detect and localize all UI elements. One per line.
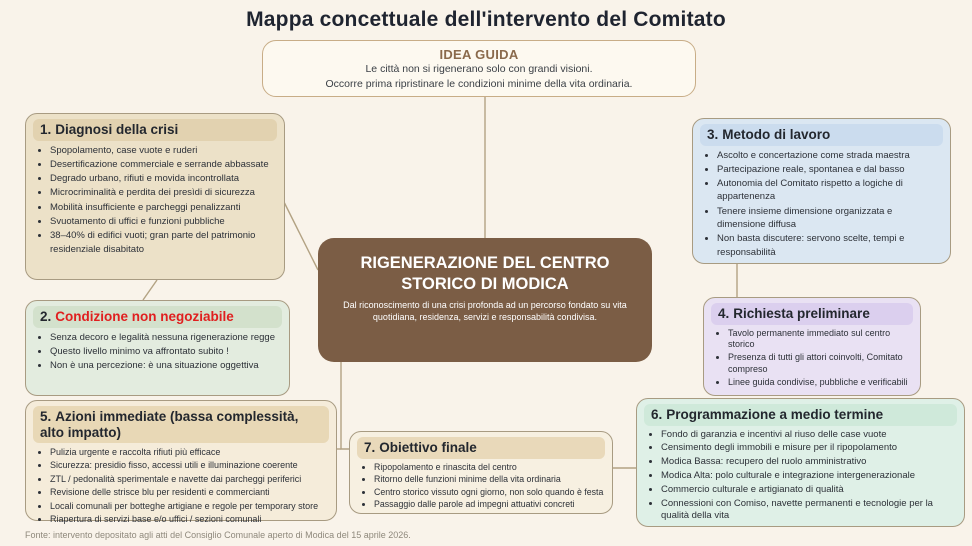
central-title: RIGENERAZIONE DEL CENTRO STORICO DI MODI… xyxy=(332,253,638,296)
node-header: 1.Diagnosi della crisi xyxy=(33,119,277,141)
bullet-item: Fondo di garanzia e incentivi al riuso d… xyxy=(661,429,957,442)
idea-guida-line2: Occorre prima ripristinare le condizioni… xyxy=(263,77,695,92)
idea-guida-banner: IDEA GUIDA Le città non si rigenerano so… xyxy=(262,40,696,97)
bullet-item: 38–40% di edifici vuoti; gran parte del … xyxy=(50,229,277,256)
node-azioni-immediate: 5.Azioni immediate (bassa complessità, a… xyxy=(25,400,337,521)
bullet-item: Locali comunali per botteghe artigiane e… xyxy=(50,500,329,512)
bullet-item: ZTL / pedonalità sperimentale e navette … xyxy=(50,473,329,485)
bullet-item: Linee guida condivise, pubbliche e verif… xyxy=(728,377,913,389)
bullet-item: Autonomia del Comitato rispetto a logich… xyxy=(717,177,943,204)
node-number: 5. xyxy=(40,409,51,424)
bullet-item: Desertificazione commerciale e serrande … xyxy=(50,158,277,171)
bullet-item: Questo livello minimo va affrontato subi… xyxy=(50,345,282,358)
node-number: 6. xyxy=(651,407,662,422)
bullet-item: Sicurezza: presidio fisso, accessi utili… xyxy=(50,459,329,471)
bullet-item: Censimento degli immobili e misure per i… xyxy=(661,442,957,455)
node-title: Azioni immediate (bassa complessità, alt… xyxy=(40,409,298,440)
bullet-item: Tavolo permanente immediato sul centro s… xyxy=(728,328,913,352)
bullet-item: Centro storico vissuto ogni giorno, non … xyxy=(374,487,605,499)
node-header: 2.Condizione non negoziabile xyxy=(33,306,282,328)
node-title: Obiettivo finale xyxy=(379,440,477,455)
node-number: 2. xyxy=(40,309,51,324)
bullet-item: Passaggio dalle parole ad impegni attuat… xyxy=(374,499,605,511)
node-programmazione-medio-termine: 6.Programmazione a medio termine Fondo d… xyxy=(636,398,965,527)
idea-guida-line1: Le città non si rigenerano solo con gran… xyxy=(263,62,695,77)
bullet-list: Senza decoro e legalità nessuna rigenera… xyxy=(33,331,282,373)
bullet-list: Spopolamento, case vuote e ruderiDeserti… xyxy=(33,144,277,256)
connector-box1-box2 xyxy=(143,280,157,300)
bullet-item: Connessioni con Comiso, navette permanen… xyxy=(661,498,957,524)
node-header: 4.Richiesta preliminare xyxy=(711,303,913,325)
bullet-list: Fondo di garanzia e incentivi al riuso d… xyxy=(644,429,957,524)
node-title: Metodo di lavoro xyxy=(722,127,830,142)
idea-guida-heading: IDEA GUIDA xyxy=(263,47,695,62)
node-title: Condizione non negoziabile xyxy=(55,309,234,324)
source-note: Fonte: intervento depositato agli atti d… xyxy=(25,530,411,540)
bullet-item: Presenza di tutti gli attori coinvolti, … xyxy=(728,352,913,376)
bullet-list: Ripopolamento e rinascita del centroRito… xyxy=(357,462,605,511)
bullet-item: Spopolamento, case vuote e ruderi xyxy=(50,144,277,157)
node-diagnosi-crisi: 1.Diagnosi della crisi Spopolamento, cas… xyxy=(25,113,285,280)
node-title: Richiesta preliminare xyxy=(733,306,870,321)
bullet-item: Commercio culturale e artigianato di qua… xyxy=(661,484,957,497)
concept-map: Mappa concettuale dell'intervento del Co… xyxy=(0,0,972,546)
bullet-item: Ritorno delle funzioni minime della vita… xyxy=(374,474,605,486)
bullet-item: Tenere insieme dimensione organizzata e … xyxy=(717,205,943,232)
bullet-item: Riapertura di servizi base e/o uffici / … xyxy=(50,513,329,525)
bullet-item: Revisione delle strisce blu per resident… xyxy=(50,486,329,498)
bullet-item: Ripopolamento e rinascita del centro xyxy=(374,462,605,474)
bullet-list: Tavolo permanente immediato sul centro s… xyxy=(711,328,913,389)
connector-central-box7 xyxy=(341,362,349,449)
bullet-list: Pulizia urgente e raccolta rifiuti più e… xyxy=(33,446,329,525)
bullet-item: Svuotamento di uffici e funzioni pubblic… xyxy=(50,215,277,228)
node-obiettivo-finale: 7.Obiettivo finale Ripopolamento e rinas… xyxy=(349,431,613,514)
bullet-list: Ascolto e concertazione come strada maes… xyxy=(700,149,943,259)
connector-box1-central xyxy=(284,202,318,270)
node-title: Diagnosi della crisi xyxy=(55,122,178,137)
node-header: 5.Azioni immediate (bassa complessità, a… xyxy=(33,406,329,443)
bullet-item: Non è una percezione: è una situazione o… xyxy=(50,359,282,372)
node-number: 7. xyxy=(364,440,375,455)
node-number: 3. xyxy=(707,127,718,142)
node-number: 4. xyxy=(718,306,729,321)
node-number: 1. xyxy=(40,122,51,137)
node-header: 3.Metodo di lavoro xyxy=(700,124,943,146)
node-header: 7.Obiettivo finale xyxy=(357,437,605,459)
bullet-item: Senza decoro e legalità nessuna rigenera… xyxy=(50,331,282,344)
bullet-item: Pulizia urgente e raccolta rifiuti più e… xyxy=(50,446,329,458)
bullet-item: Modica Alta: polo culturale e integrazio… xyxy=(661,470,957,483)
node-richiesta-preliminare: 4.Richiesta preliminare Tavolo permanent… xyxy=(703,297,921,396)
node-condizione-non-negoziabile: 2.Condizione non negoziabile Senza decor… xyxy=(25,300,290,396)
page-title: Mappa concettuale dell'intervento del Co… xyxy=(0,8,972,32)
node-metodo-di-lavoro: 3.Metodo di lavoro Ascolto e concertazio… xyxy=(692,118,951,264)
bullet-item: Non basta discutere: servono scelte, tem… xyxy=(717,232,943,259)
bullet-item: Mobilità insufficiente e parcheggi penal… xyxy=(50,201,277,214)
node-header: 6.Programmazione a medio termine xyxy=(644,404,957,426)
bullet-item: Microcriminalità e perdita dei presìdi d… xyxy=(50,186,277,199)
central-subtitle: Dal riconoscimento di una crisi profonda… xyxy=(338,299,632,324)
bullet-item: Partecipazione reale, spontanea e dal ba… xyxy=(717,163,943,176)
bullet-item: Modica Bassa: recupero del ruolo amminis… xyxy=(661,456,957,469)
node-title: Programmazione a medio termine xyxy=(666,407,883,422)
bullet-item: Degrado urbano, rifiuti e movida incontr… xyxy=(50,172,277,185)
bullet-item: Ascolto e concertazione come strada maes… xyxy=(717,149,943,162)
node-rigenerazione-centro-storico: RIGENERAZIONE DEL CENTRO STORICO DI MODI… xyxy=(318,238,652,362)
